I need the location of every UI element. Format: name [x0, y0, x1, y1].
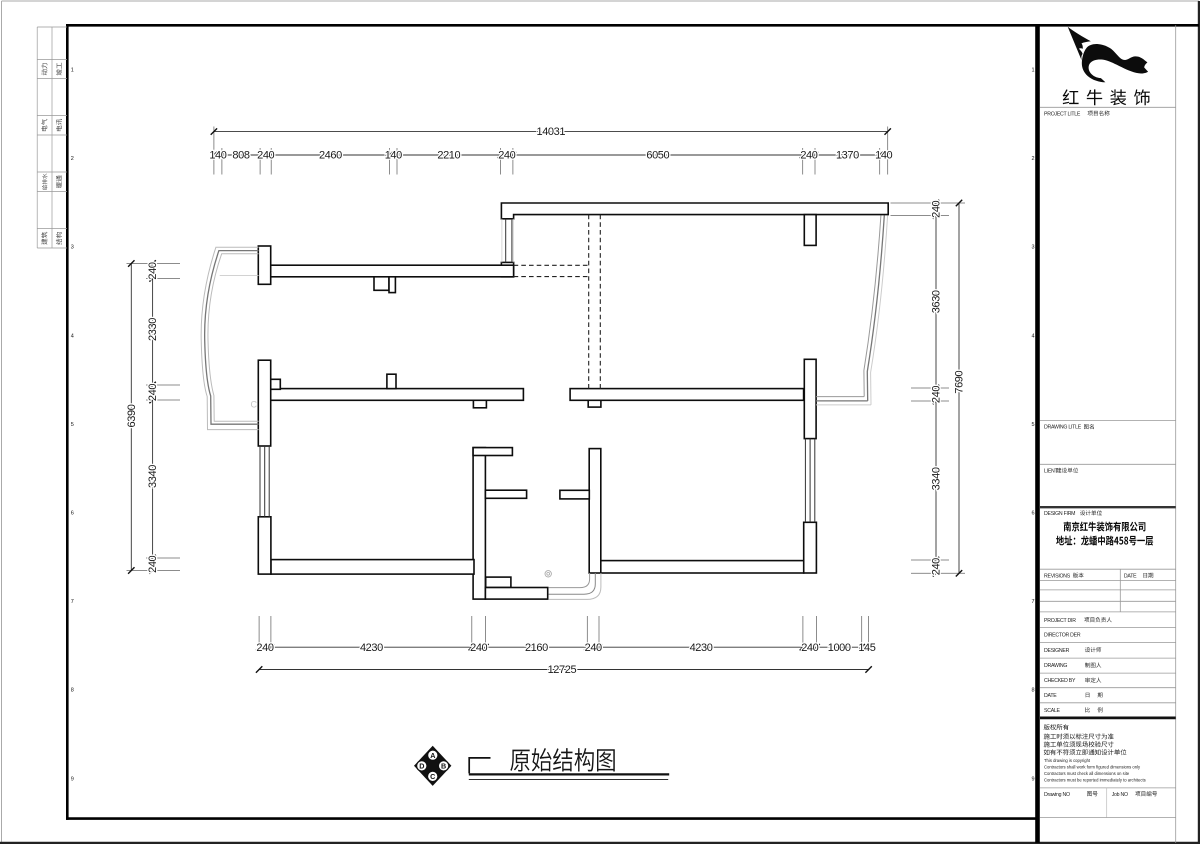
svg-text:240: 240 — [585, 642, 602, 654]
svg-text:6: 6 — [71, 511, 74, 517]
svg-text:LIENT: LIENT — [1044, 468, 1059, 474]
svg-text:12725: 12725 — [548, 664, 577, 676]
svg-text:1000: 1000 — [828, 642, 851, 654]
svg-text:140: 140 — [385, 150, 402, 162]
svg-text:240: 240 — [147, 384, 159, 401]
svg-text:2: 2 — [1031, 156, 1034, 162]
svg-text:DATE: DATE — [1124, 573, 1137, 579]
svg-text:240: 240 — [498, 150, 515, 162]
svg-text:CHECKED BY: CHECKED BY — [1044, 678, 1076, 684]
svg-text:SCALE: SCALE — [1044, 708, 1061, 714]
svg-text:240: 240 — [931, 558, 943, 575]
svg-text:3340: 3340 — [147, 465, 159, 488]
svg-text:14031: 14031 — [537, 126, 566, 138]
svg-text:Contractors must check all dim: Contractors must check all dimensions on… — [1044, 771, 1130, 776]
svg-text:5: 5 — [71, 422, 74, 428]
svg-text:2460: 2460 — [319, 150, 342, 162]
svg-text:C: C — [251, 400, 258, 410]
svg-text:6: 6 — [1031, 511, 1034, 517]
svg-text:PROJECT LITLE: PROJECT LITLE — [1044, 111, 1081, 117]
svg-text:DESIGN FIRM: DESIGN FIRM — [1044, 511, 1075, 517]
svg-text:2330: 2330 — [147, 318, 159, 341]
svg-text:8: 8 — [71, 688, 74, 694]
svg-text:240: 240 — [931, 386, 943, 403]
svg-text:4: 4 — [71, 333, 74, 339]
svg-text:Job NO: Job NO — [1112, 792, 1128, 798]
svg-text:140: 140 — [875, 150, 892, 162]
svg-text:240: 240 — [256, 642, 273, 654]
svg-text:1370: 1370 — [836, 150, 859, 162]
svg-text:9: 9 — [71, 776, 74, 782]
svg-text:Drawing NO: Drawing NO — [1044, 792, 1070, 798]
svg-text:DIRECTOR DER: DIRECTOR DER — [1044, 633, 1081, 639]
svg-text:240: 240 — [931, 200, 943, 217]
svg-text:Contractors shall work form fi: Contractors shall work form figured dime… — [1044, 765, 1141, 770]
svg-text:This drawing is copyright: This drawing is copyright — [1044, 758, 1091, 763]
svg-text:8: 8 — [1031, 688, 1034, 694]
svg-text:Contractors must be reported i: Contractors must be reported immediately… — [1044, 777, 1146, 782]
svg-text:B: B — [441, 762, 446, 771]
svg-text:140: 140 — [209, 150, 226, 162]
svg-text:240: 240 — [800, 150, 817, 162]
svg-text:145: 145 — [858, 642, 875, 654]
svg-text:2160: 2160 — [525, 642, 548, 654]
svg-text:DRAWING: DRAWING — [1044, 663, 1067, 669]
svg-text:3630: 3630 — [931, 290, 943, 313]
svg-text:2210: 2210 — [437, 150, 460, 162]
svg-text:1: 1 — [71, 68, 74, 74]
svg-text:7: 7 — [1031, 599, 1034, 605]
svg-text:6050: 6050 — [646, 150, 669, 162]
svg-text:240: 240 — [147, 555, 159, 572]
svg-text:DESIGNER: DESIGNER — [1044, 648, 1070, 654]
svg-text:240: 240 — [470, 642, 487, 654]
svg-text:7690: 7690 — [954, 370, 966, 393]
svg-text:808: 808 — [232, 150, 249, 162]
svg-text:2: 2 — [71, 156, 74, 162]
svg-text:3: 3 — [71, 245, 74, 251]
svg-text:PROJECT DIR: PROJECT DIR — [1044, 618, 1076, 624]
svg-text:DRAWING LITLE: DRAWING LITLE — [1044, 425, 1082, 431]
svg-text:6390: 6390 — [126, 404, 138, 427]
svg-text:DATE: DATE — [1044, 693, 1057, 699]
svg-text:C: C — [430, 772, 435, 781]
svg-text:REVISIONS: REVISIONS — [1044, 573, 1071, 579]
svg-text:3: 3 — [1031, 245, 1034, 251]
svg-text:7: 7 — [71, 599, 74, 605]
svg-text:4230: 4230 — [690, 642, 713, 654]
svg-text:240: 240 — [257, 150, 274, 162]
svg-text:1: 1 — [1031, 68, 1034, 74]
svg-text:A: A — [430, 751, 435, 760]
svg-text:D: D — [419, 762, 424, 771]
svg-text:4230: 4230 — [360, 642, 383, 654]
svg-text:4: 4 — [1031, 333, 1034, 339]
svg-text:240: 240 — [801, 642, 818, 654]
svg-text:9: 9 — [1031, 776, 1034, 782]
svg-text:5: 5 — [1031, 422, 1034, 428]
svg-text:240: 240 — [147, 262, 159, 279]
svg-text:3340: 3340 — [931, 467, 943, 490]
